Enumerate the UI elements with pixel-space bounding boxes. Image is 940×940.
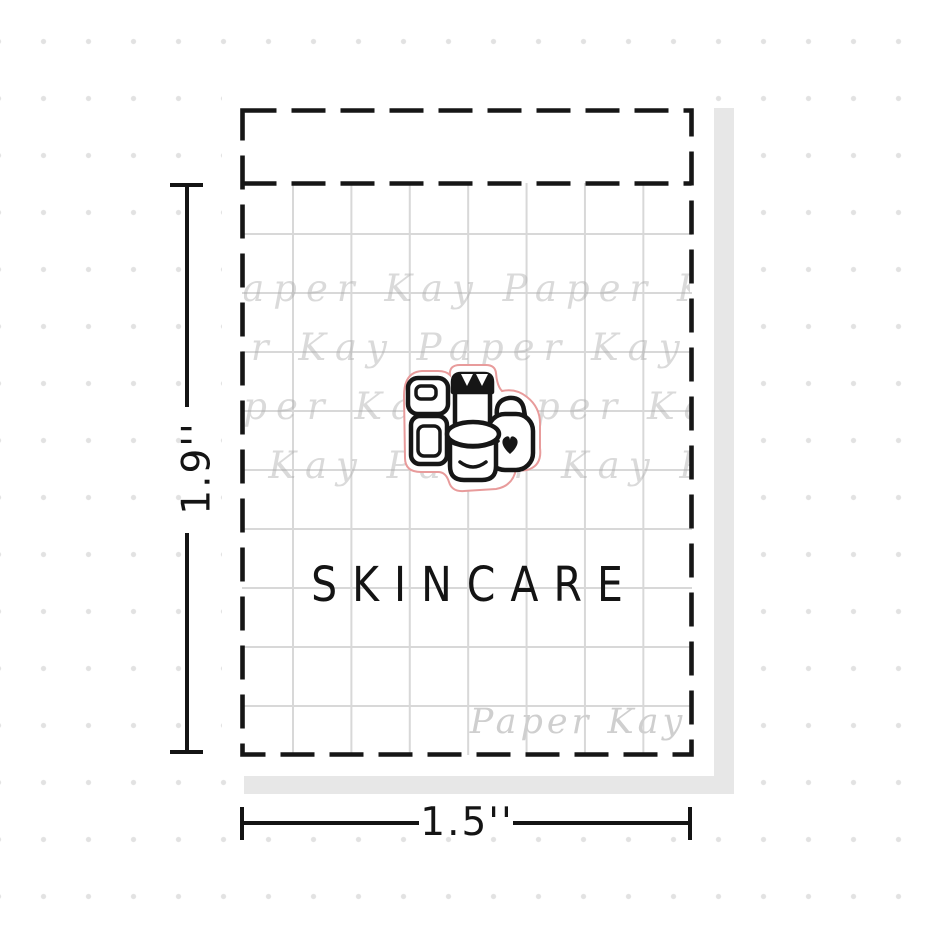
sticker-label: SKINCARE <box>242 556 692 613</box>
width-dimension-line <box>513 821 690 825</box>
height-dimension-line <box>185 533 189 754</box>
width-dimension-label: 1.5'' <box>419 800 515 845</box>
height-dimension-line <box>185 185 189 407</box>
width-dimension-cap <box>240 807 244 840</box>
sheet-grid-pattern <box>242 183 692 755</box>
height-dimension-cap <box>170 183 203 187</box>
height-dimension-label: 1.9'' <box>175 421 220 514</box>
width-dimension-line <box>242 821 419 825</box>
height-dimension-cap <box>170 750 203 754</box>
product-photo-background: Paper Kay Paper Kay Paper Kay Paper Kay … <box>0 0 940 940</box>
brand-watermark-signature: Paper Kay <box>462 702 694 742</box>
width-dimension-cap <box>688 807 692 840</box>
